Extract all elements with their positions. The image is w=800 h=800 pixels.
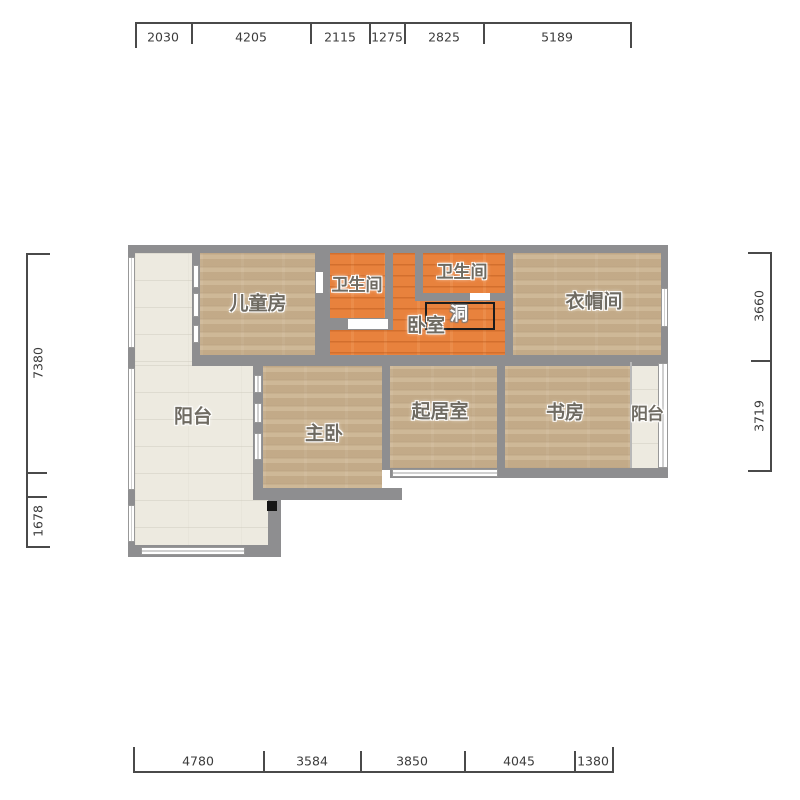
door-children <box>316 272 323 293</box>
dim-value: 1678 <box>31 505 46 537</box>
dim-tick <box>483 22 485 44</box>
dim-tick <box>464 751 466 773</box>
wall-top <box>128 245 668 253</box>
wall-cloakroom-left <box>505 253 513 355</box>
dim-tick <box>26 496 47 498</box>
window-master-balcony-1 <box>254 375 262 393</box>
column-marker <box>267 501 277 511</box>
window-left-3 <box>128 505 135 542</box>
window-children-balcony-2 <box>193 293 199 317</box>
dim-value: 1380 <box>577 754 609 769</box>
bath1-label: 卫生间 <box>332 271 383 296</box>
wall-living-right <box>497 358 505 470</box>
living-room-label: 起居室 <box>411 397 468 424</box>
dim-tick <box>310 22 312 44</box>
dim-tick <box>135 22 137 48</box>
dim-value: 3850 <box>396 754 428 769</box>
wall-middle-horizontal <box>192 355 668 366</box>
bedroom-label: 卧室 <box>407 311 445 338</box>
dim-line <box>26 253 28 548</box>
dim-tick <box>191 22 193 44</box>
balcony-left-floor-bottom <box>135 500 268 546</box>
dim-tick <box>26 546 50 548</box>
dim-tick <box>360 751 362 773</box>
dim-tick <box>574 751 576 773</box>
window-left-2 <box>128 368 135 490</box>
balcony-left-label: 阳台 <box>174 402 212 429</box>
window-living-bottom <box>392 469 498 477</box>
window-master-balcony-2 <box>254 403 262 423</box>
dim-tick <box>263 751 265 773</box>
dim-tick <box>612 747 614 773</box>
balcony-left-floor-upper <box>135 253 197 367</box>
dim-tick <box>26 472 47 474</box>
dim-value: 3584 <box>296 754 328 769</box>
window-balcony-lower-bottom <box>141 547 245 555</box>
dim-tick <box>748 252 772 254</box>
floorplan-canvas: 儿童房 卫生间 卫生间 卧室 洞 衣帽间 阳台 主卧 起居室 书房 阳台 <box>0 0 800 800</box>
dim-value: 3719 <box>752 400 767 432</box>
dim-tick <box>751 360 772 362</box>
dim-value: 2115 <box>324 30 356 45</box>
balcony-right-label: 阳台 <box>631 400 663 425</box>
dim-value: 2825 <box>428 30 460 45</box>
dim-value: 4045 <box>503 754 535 769</box>
dim-line <box>135 22 632 24</box>
master-bedroom-label: 主卧 <box>305 419 343 446</box>
dim-value: 3660 <box>752 290 767 322</box>
window-left-1 <box>128 257 135 348</box>
floorplan-page: { "title": "apartment-floor-plan", "room… <box>0 0 800 800</box>
door-bath1 <box>348 319 388 329</box>
window-master-balcony-3 <box>254 433 262 460</box>
dim-value: 4780 <box>182 754 214 769</box>
dim-tick <box>26 253 50 255</box>
window-children-balcony-1 <box>193 265 199 288</box>
dim-value: 7380 <box>31 347 46 379</box>
study-label: 书房 <box>546 398 584 425</box>
dim-value: 2030 <box>147 30 179 45</box>
dim-tick <box>748 470 772 472</box>
window-cloakroom-right <box>661 288 668 327</box>
window-children-balcony-3 <box>193 325 199 343</box>
hole-label: 洞 <box>450 300 468 326</box>
dim-tick <box>133 747 135 773</box>
dim-tick <box>630 22 632 48</box>
cloakroom-label: 衣帽间 <box>565 287 622 314</box>
balcony-left-floor-lower <box>135 365 253 505</box>
dim-line <box>133 771 614 773</box>
wall-master-right <box>382 358 390 470</box>
children-room-label: 儿童房 <box>229 289 286 316</box>
door-bath2 <box>470 293 490 300</box>
dim-value: 5189 <box>541 30 573 45</box>
dim-value: 1275 <box>371 30 403 45</box>
dim-value: 4205 <box>235 30 267 45</box>
wall-children-right <box>315 253 330 366</box>
dim-line <box>770 252 772 472</box>
dim-tick <box>404 22 406 44</box>
bath2-label: 卫生间 <box>437 258 488 283</box>
